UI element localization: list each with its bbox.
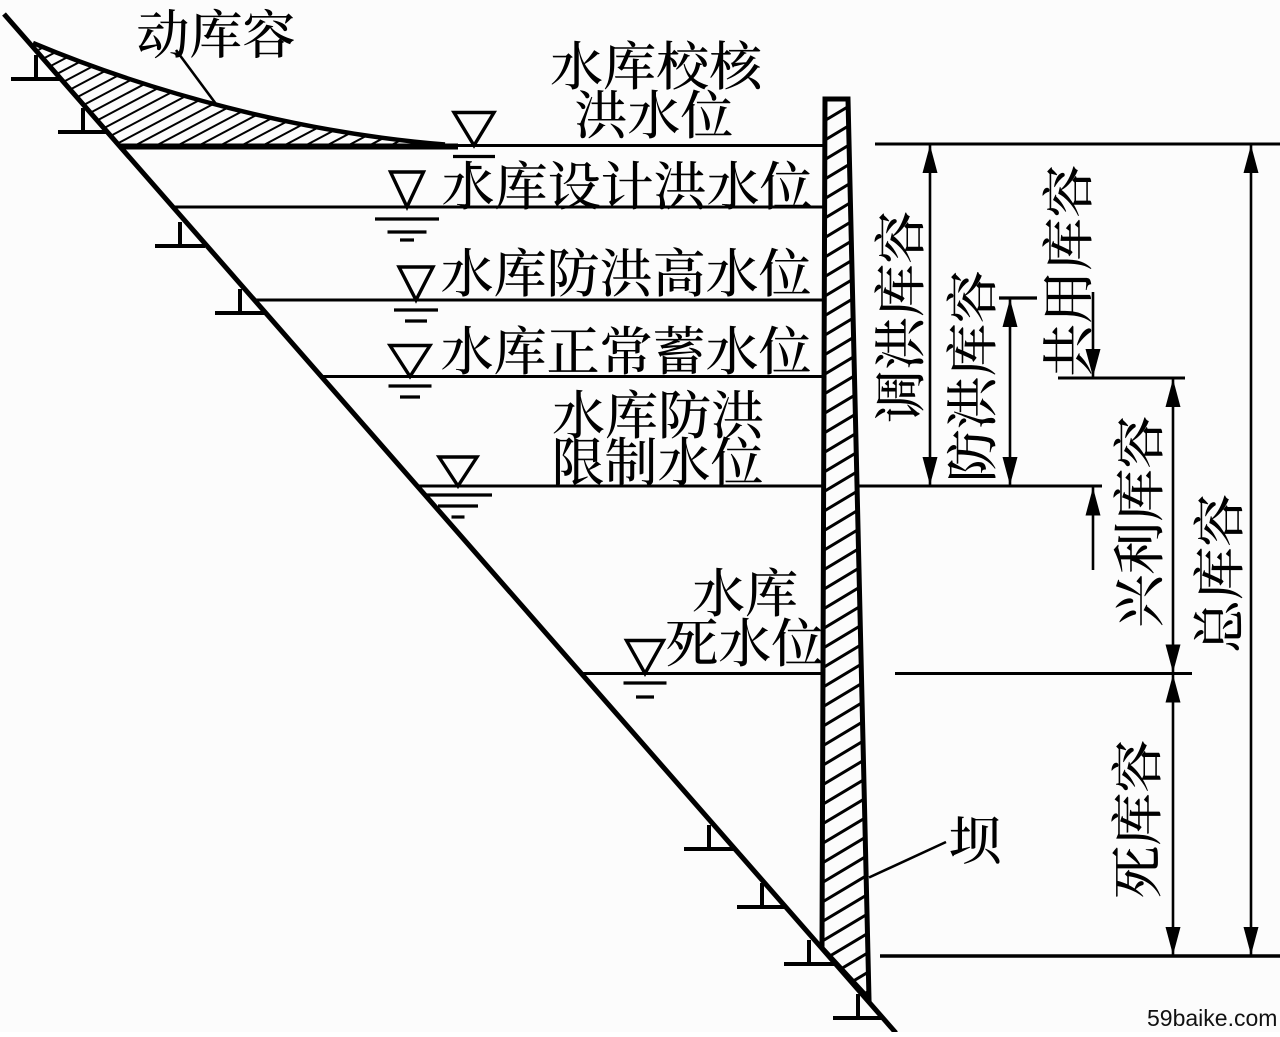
svg-text:59baike.com: 59baike.com [1147, 1005, 1277, 1031]
